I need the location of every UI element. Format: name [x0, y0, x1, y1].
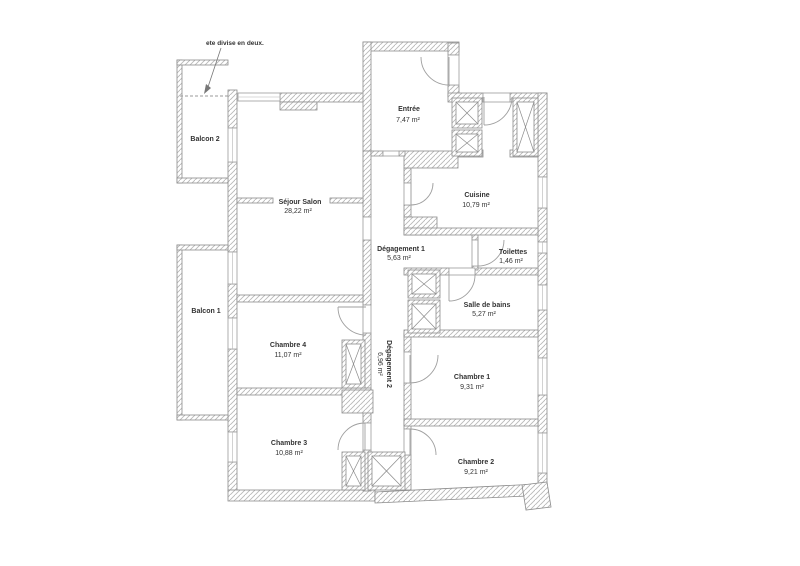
front-door-opening: [448, 55, 459, 85]
room-label-toilettes: Toilettes: [499, 249, 527, 256]
toilettes-door-opening: [472, 240, 478, 266]
window: [228, 318, 237, 349]
room-label-balcon1: Balcon 1: [191, 308, 220, 315]
closet: [452, 130, 482, 156]
room-label-chambre3: Chambre 3: [271, 440, 307, 447]
room-area-chambre4: 11,07 m²: [274, 352, 302, 359]
room-label-degagement2: Dégagement 2: [385, 340, 392, 388]
cuisine-door-opening: [404, 183, 411, 205]
window: [538, 358, 547, 395]
room-area-degagement1: 5,63 m²: [387, 255, 411, 262]
room-label-chambre2: Chambre 2: [458, 459, 494, 466]
window: [228, 128, 237, 162]
sejour-opening: [363, 217, 371, 240]
room-area-toilettes: 1,46 m²: [499, 258, 523, 265]
room-label-balcon2: Balcon 2: [190, 136, 219, 143]
sdb-door-opening: [449, 268, 475, 275]
room-area-chambre1: 9,31 m²: [460, 384, 484, 391]
closet: [368, 452, 405, 490]
room-label-cuisine: Cuisine: [464, 192, 489, 199]
closet: [513, 98, 538, 156]
chambre4-door-opening: [363, 305, 371, 333]
window: [238, 93, 280, 101]
floor-plan: ete divise en deux. Balcon 2 Balcon 1 En…: [0, 0, 800, 566]
room-area-chambre3: 10,88 m²: [275, 450, 303, 457]
window: [228, 432, 237, 462]
room-area-salle-de-bains: 5,27 m²: [472, 311, 496, 318]
annotation-note: ete divise en deux.: [206, 40, 264, 47]
window: [538, 285, 547, 310]
closet: [408, 300, 440, 333]
room-label-sejour: Séjour Salon: [279, 199, 322, 206]
chambre3-door-opening: [363, 423, 371, 450]
window: [538, 433, 547, 473]
room-label-chambre1: Chambre 1: [454, 374, 490, 381]
room-label-degagement1: Dégagement 1: [377, 246, 425, 253]
closet: [342, 452, 365, 490]
room-area-sejour: 28,22 m²: [284, 208, 312, 215]
closet: [408, 270, 440, 298]
room-area-degagement2: 6,96 m²: [376, 352, 383, 376]
entree-opening: [383, 151, 399, 156]
room-label-chambre4: Chambre 4: [270, 342, 306, 349]
room-area-cuisine: 10,79 m²: [462, 202, 490, 209]
window: [228, 252, 237, 284]
window: [538, 242, 547, 253]
closet: [342, 340, 365, 388]
closet: [452, 98, 482, 128]
window: [538, 177, 547, 208]
service-door-opening: [483, 93, 510, 102]
room-label-salle-de-bains: Salle de bains: [464, 302, 511, 309]
room-area-chambre2: 9,21 m²: [464, 469, 488, 476]
room-label-entree: Entrée: [398, 106, 420, 113]
room-area-entree: 7,47 m²: [396, 117, 420, 124]
